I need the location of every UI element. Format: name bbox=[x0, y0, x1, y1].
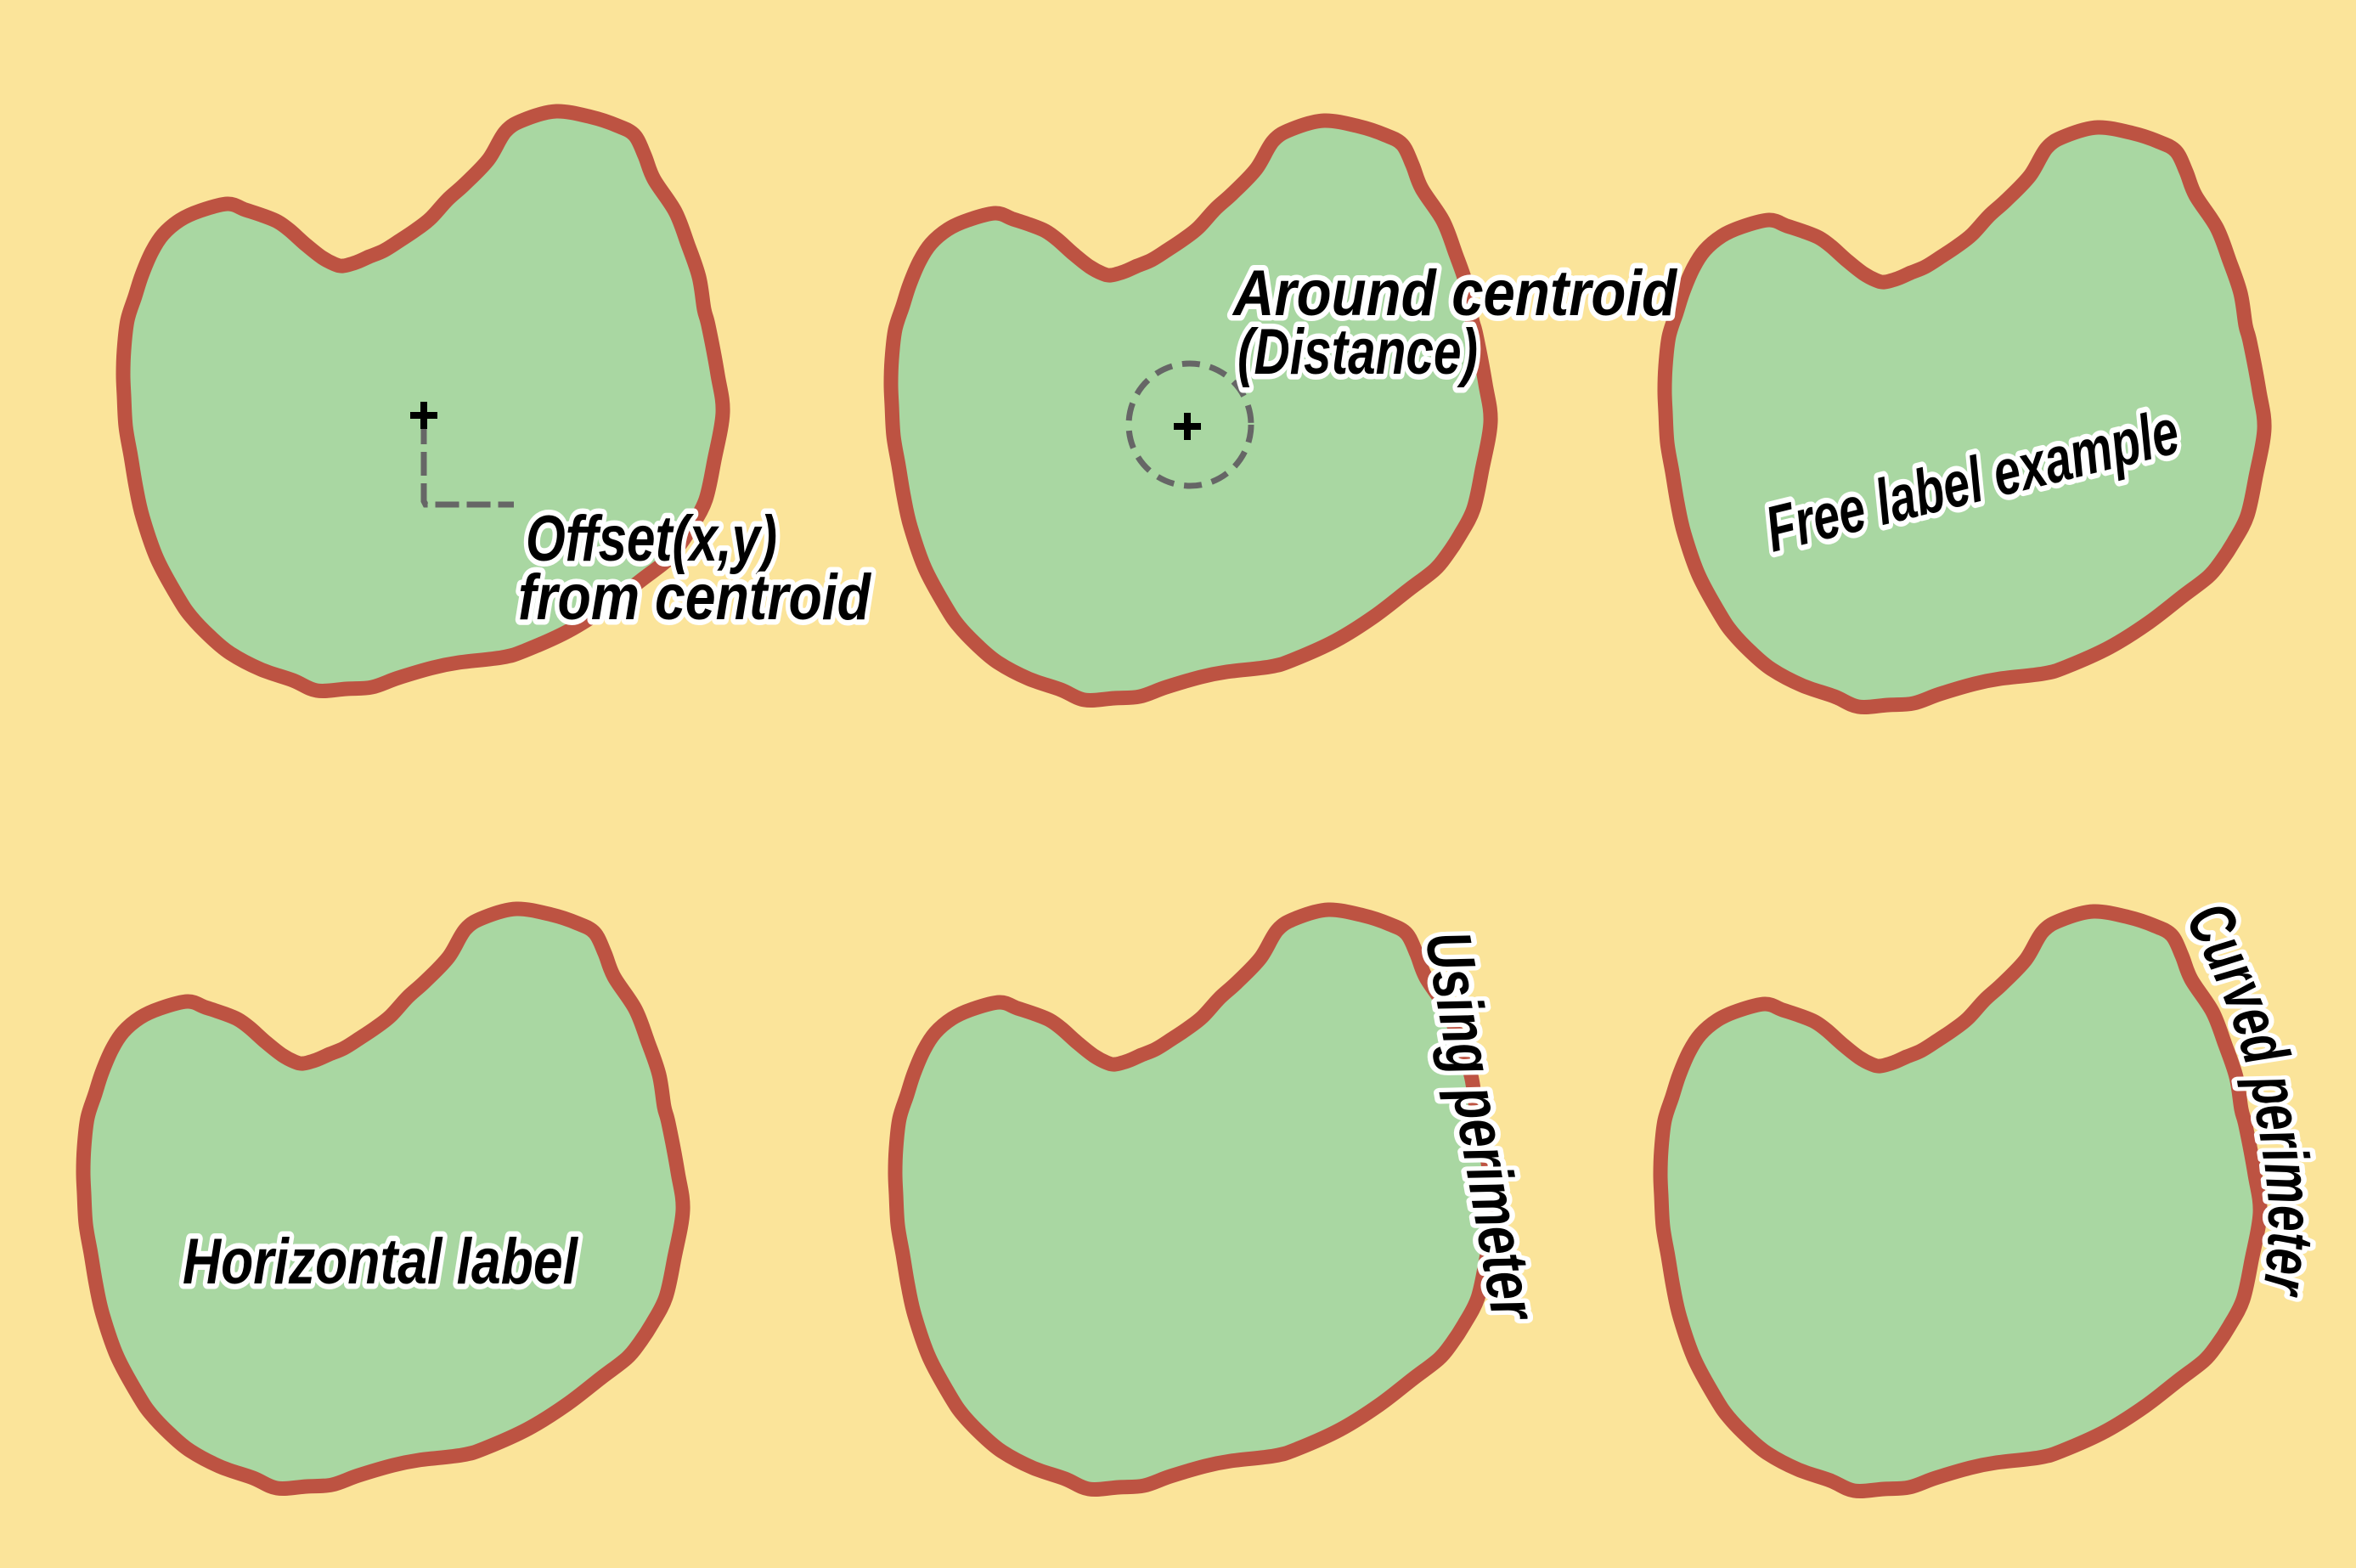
svg-text:Horizontal label: Horizontal label bbox=[183, 1226, 579, 1298]
svg-text:(Distance): (Distance) bbox=[1237, 316, 1478, 388]
svg-text:from centroid: from centroid bbox=[518, 561, 871, 634]
